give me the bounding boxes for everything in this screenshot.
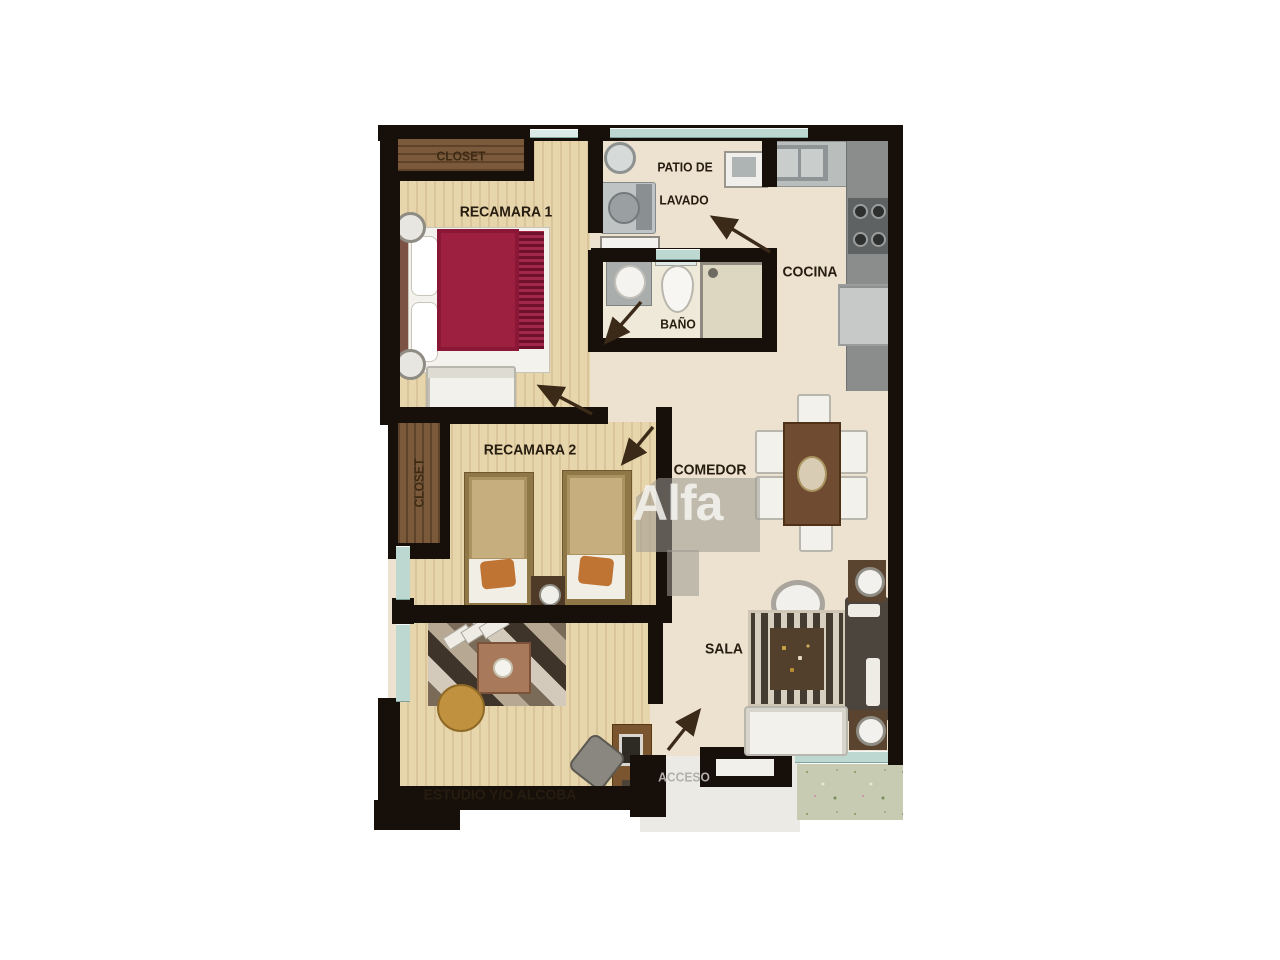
door-arrow-patio (714, 218, 770, 252)
door-arrow-recamara1 (541, 387, 592, 414)
watermark-house-base (667, 550, 699, 596)
door-arrow-recamara2 (624, 427, 653, 462)
watermark-text: Alfa (632, 474, 722, 532)
floor-plan: CLOSET RECAMARA 1 PATIO DE LAVADO COCINA… (0, 0, 1280, 960)
door-arrow-estudio (668, 712, 698, 750)
door-arrow-bano (607, 302, 641, 341)
